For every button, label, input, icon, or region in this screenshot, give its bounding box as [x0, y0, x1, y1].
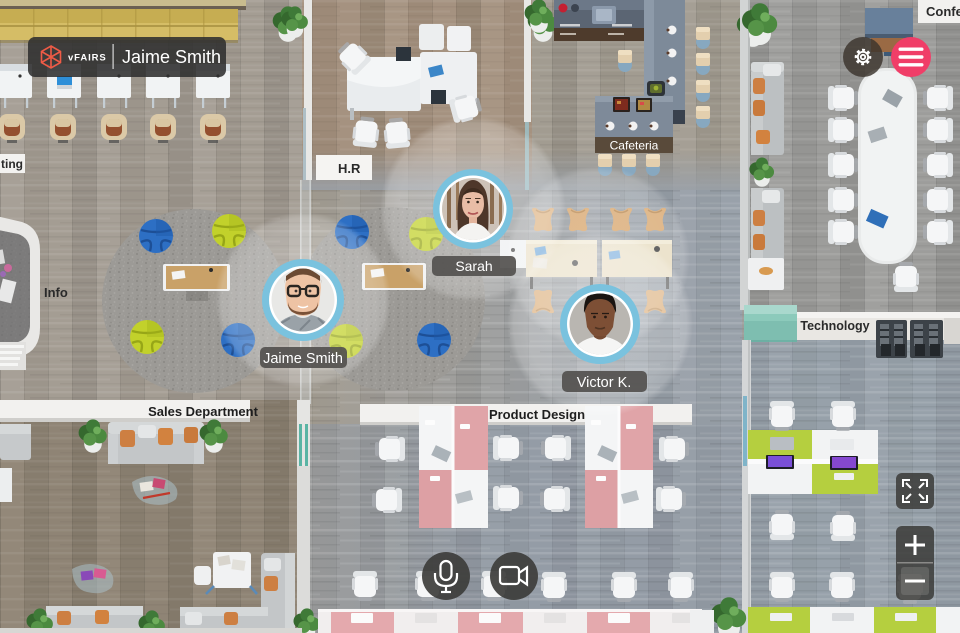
svg-text:Confer: Confer [926, 4, 960, 19]
svg-text:Info: Info [44, 285, 68, 300]
svg-text:Jaime Smith: Jaime Smith [263, 351, 343, 367]
svg-text:Technology: Technology [800, 319, 869, 333]
svg-text:Cafeteria: Cafeteria [610, 139, 659, 153]
svg-text:vFAIRS: vFAIRS [68, 53, 107, 64]
svg-text:Victor K.: Victor K. [577, 375, 632, 391]
svg-text:Sarah: Sarah [455, 258, 492, 274]
svg-text:ting: ting [1, 157, 23, 171]
svg-text:Sales Department: Sales Department [148, 404, 258, 419]
svg-text:Jaime Smith: Jaime Smith [122, 47, 221, 67]
svg-text:H.R: H.R [338, 161, 361, 176]
